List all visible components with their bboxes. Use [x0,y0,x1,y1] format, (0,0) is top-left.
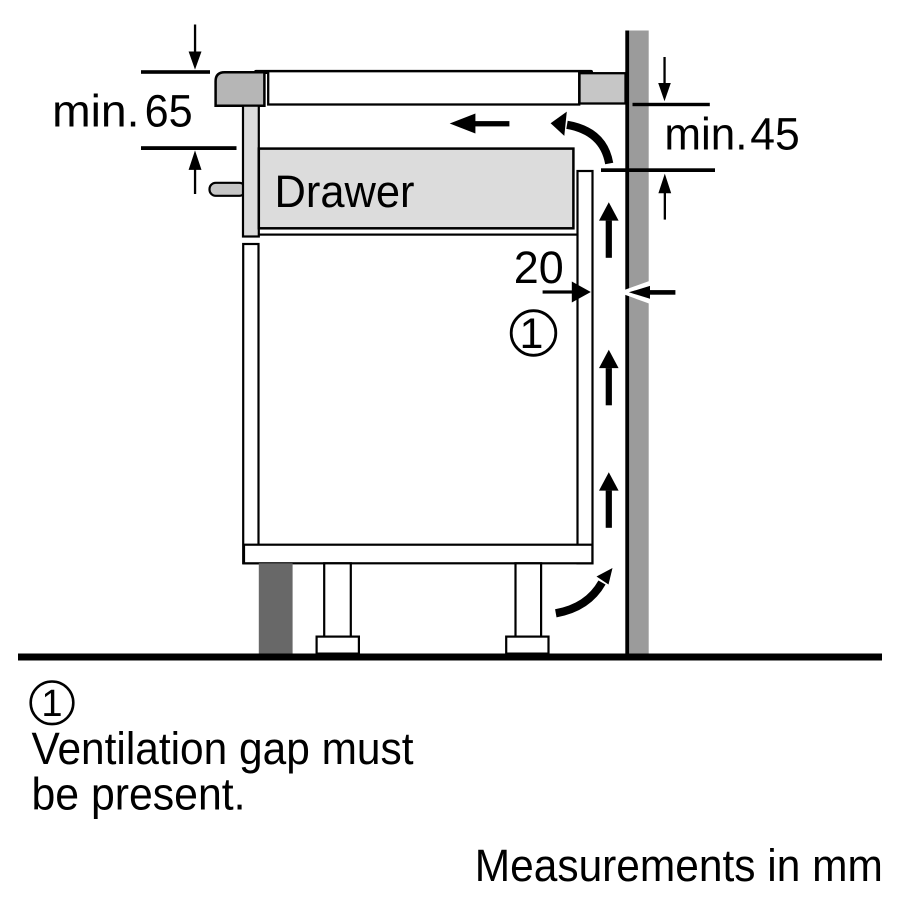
svg-text:45: 45 [750,109,800,160]
svg-text:min.: min. [52,86,139,137]
svg-text:Measurements in mm: Measurements in mm [475,840,883,891]
svg-text:1: 1 [520,310,544,358]
svg-text:65: 65 [145,86,193,137]
svg-text:20: 20 [514,242,564,293]
svg-text:be present.: be present. [32,768,246,819]
svg-text:Ventilation gap must: Ventilation gap must [32,723,414,774]
svg-text:min.: min. [664,109,747,160]
svg-text:1: 1 [41,683,62,725]
svg-text:Drawer: Drawer [275,166,415,217]
